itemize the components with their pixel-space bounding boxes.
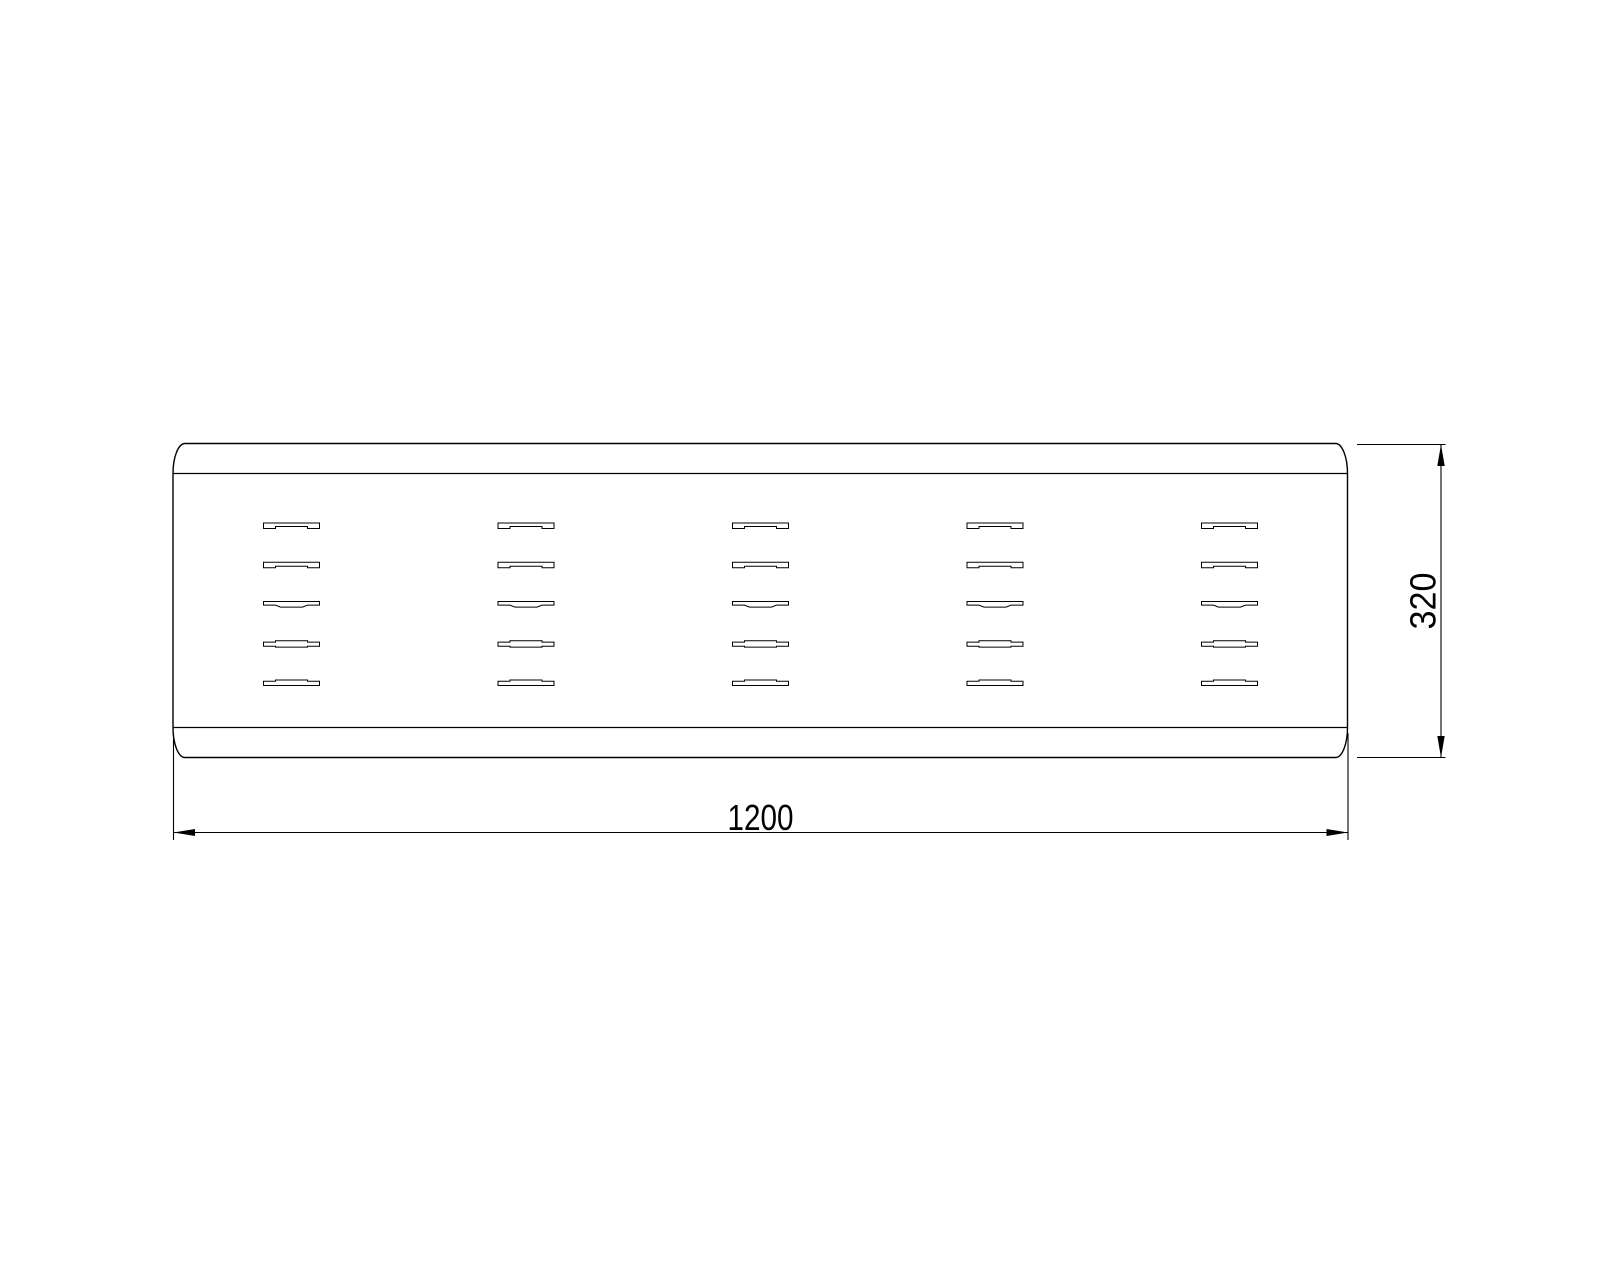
arrow-up-icon	[1437, 445, 1444, 467]
height-dimension-label: 320	[1403, 573, 1444, 630]
width-dimension-label: 1200	[728, 797, 794, 838]
arrow-down-icon	[1437, 736, 1444, 758]
vent-slot	[498, 562, 554, 568]
arrow-right-icon	[1327, 829, 1349, 836]
vent-slot	[967, 641, 1023, 647]
vent-slot	[967, 602, 1023, 608]
technical-drawing-svg: 1200 320	[0, 0, 1600, 1280]
vent-slot	[1202, 562, 1258, 568]
vent-slot	[264, 641, 320, 647]
vent-slot	[498, 641, 554, 647]
vent-slot	[264, 602, 320, 608]
vent-slot	[967, 680, 1023, 686]
drawing-canvas: 1200 320	[0, 0, 1600, 1280]
vent-slot	[967, 562, 1023, 568]
vent-slot	[1202, 523, 1258, 529]
height-dimension: 320	[1357, 445, 1446, 758]
vent-slot	[733, 680, 789, 686]
vent-slot-grid	[264, 523, 1258, 686]
vent-slot	[967, 523, 1023, 529]
vent-slot	[264, 562, 320, 568]
panel-front-view	[173, 444, 1348, 758]
vent-slot	[264, 523, 320, 529]
panel-outer-outline	[173, 444, 1348, 758]
vent-slot	[733, 562, 789, 568]
vent-slot	[264, 680, 320, 686]
vent-slot	[1202, 602, 1258, 608]
vent-slot	[498, 602, 554, 608]
vent-slot	[733, 641, 789, 647]
vent-slot	[498, 523, 554, 529]
vent-slot	[733, 602, 789, 608]
arrow-left-icon	[174, 829, 196, 836]
width-dimension: 1200	[174, 733, 1349, 840]
vent-slot	[1202, 680, 1258, 686]
vent-slot	[498, 680, 554, 686]
vent-slot	[733, 523, 789, 529]
vent-slot	[1202, 641, 1258, 647]
